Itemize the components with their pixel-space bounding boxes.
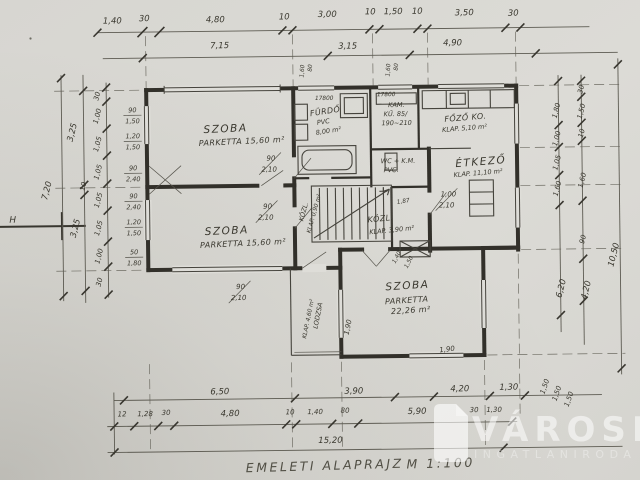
room-label: WC + K.M. bbox=[381, 157, 416, 165]
scanned-floor-plan-sheet: H bbox=[0, 0, 640, 480]
window-spec: 2,40 bbox=[126, 175, 141, 183]
window bbox=[378, 83, 412, 91]
window bbox=[142, 106, 150, 144]
dim-label: 7,15 bbox=[210, 41, 229, 51]
watermark-subtitle: INGATLANIRODA bbox=[474, 448, 636, 461]
window bbox=[438, 82, 504, 91]
dim-label: 10 bbox=[279, 12, 290, 22]
dim-label: 80 bbox=[341, 407, 351, 415]
window-spec: 1,50 bbox=[125, 117, 140, 125]
floor-plan-drawing: H bbox=[0, 0, 640, 480]
dim-label: 1,50 bbox=[384, 7, 403, 17]
dim-label: 3,00 bbox=[318, 10, 337, 20]
dim-label: 4,90 bbox=[443, 38, 462, 48]
window-spec: 1,60 bbox=[299, 64, 306, 78]
window bbox=[409, 351, 463, 360]
room-detail: 190~210 bbox=[381, 119, 411, 127]
door-spec: 2,10 bbox=[258, 214, 274, 222]
window bbox=[298, 84, 334, 92]
room-detail: PVC. bbox=[384, 166, 399, 174]
window bbox=[164, 84, 280, 93]
door-spec: 2,10 bbox=[439, 201, 455, 209]
dim-label: 10 bbox=[412, 7, 423, 17]
watermark-brand: VÁROSI bbox=[472, 409, 640, 450]
window-spec: 80 bbox=[394, 63, 401, 71]
window-spec: 2,40 bbox=[126, 203, 141, 211]
door-spec: 2,10 bbox=[261, 166, 277, 174]
room-label: SZOBA bbox=[205, 224, 250, 238]
dim-label: 10 bbox=[286, 408, 296, 416]
window-spec: 90 bbox=[129, 164, 137, 172]
window bbox=[172, 264, 282, 273]
window-spec: 1,60 bbox=[385, 63, 392, 77]
window bbox=[512, 104, 520, 144]
window-spec: 1,20 bbox=[126, 218, 141, 226]
door-spec: 90 bbox=[236, 283, 246, 291]
window-spec: 1,80 bbox=[127, 259, 142, 267]
window bbox=[144, 200, 152, 240]
window-head-label: 17800 bbox=[377, 92, 396, 98]
dim-label: 4,80 bbox=[221, 409, 240, 419]
door-spec: 1,00 bbox=[441, 190, 457, 198]
window-spec: 90 bbox=[129, 192, 137, 200]
window-spec: 90 bbox=[128, 106, 136, 114]
window bbox=[513, 188, 521, 228]
window bbox=[480, 280, 489, 328]
dim-label: 15,20 bbox=[318, 436, 342, 446]
dim-label: 3,90 bbox=[344, 386, 363, 396]
room-label: SZOBA bbox=[203, 122, 248, 136]
dim-label: 1,40 bbox=[307, 408, 323, 416]
section-marker-label: H bbox=[9, 216, 16, 226]
door-spec: 90 bbox=[266, 155, 276, 163]
dim-label: 6,50 bbox=[210, 387, 229, 397]
dim-label: 12 bbox=[118, 410, 128, 418]
dim-label: 3,15 bbox=[338, 42, 357, 52]
window-spec: 80 bbox=[308, 64, 315, 72]
room-detail: KŰ. 85/ bbox=[384, 109, 409, 118]
window-spec: 50 bbox=[130, 248, 138, 256]
dim-label: 3,50 bbox=[455, 8, 474, 18]
dim-label: 30 bbox=[139, 14, 150, 24]
window-spec: 1,20 bbox=[125, 132, 140, 140]
door-spec: 90 bbox=[263, 203, 273, 211]
dim-label: 4,20 bbox=[450, 384, 469, 394]
dim-label: 5,90 bbox=[408, 407, 427, 417]
window-spec: 1,50 bbox=[127, 229, 142, 237]
dim-label: 4,80 bbox=[206, 15, 225, 25]
room-label: KAM. bbox=[388, 101, 404, 109]
door-spec: 2,10 bbox=[231, 294, 247, 302]
window-head-label: 17800 bbox=[315, 96, 334, 102]
dim-label: 1,28 bbox=[137, 410, 153, 418]
window-spec: 1,50 bbox=[126, 143, 141, 151]
dim-label: 1,40 bbox=[103, 16, 122, 26]
dim-label: 30 bbox=[162, 409, 172, 417]
dim-label: 10 bbox=[365, 7, 376, 17]
dim-label: 30 bbox=[508, 9, 519, 19]
dim-label: 1,30 bbox=[499, 383, 518, 393]
